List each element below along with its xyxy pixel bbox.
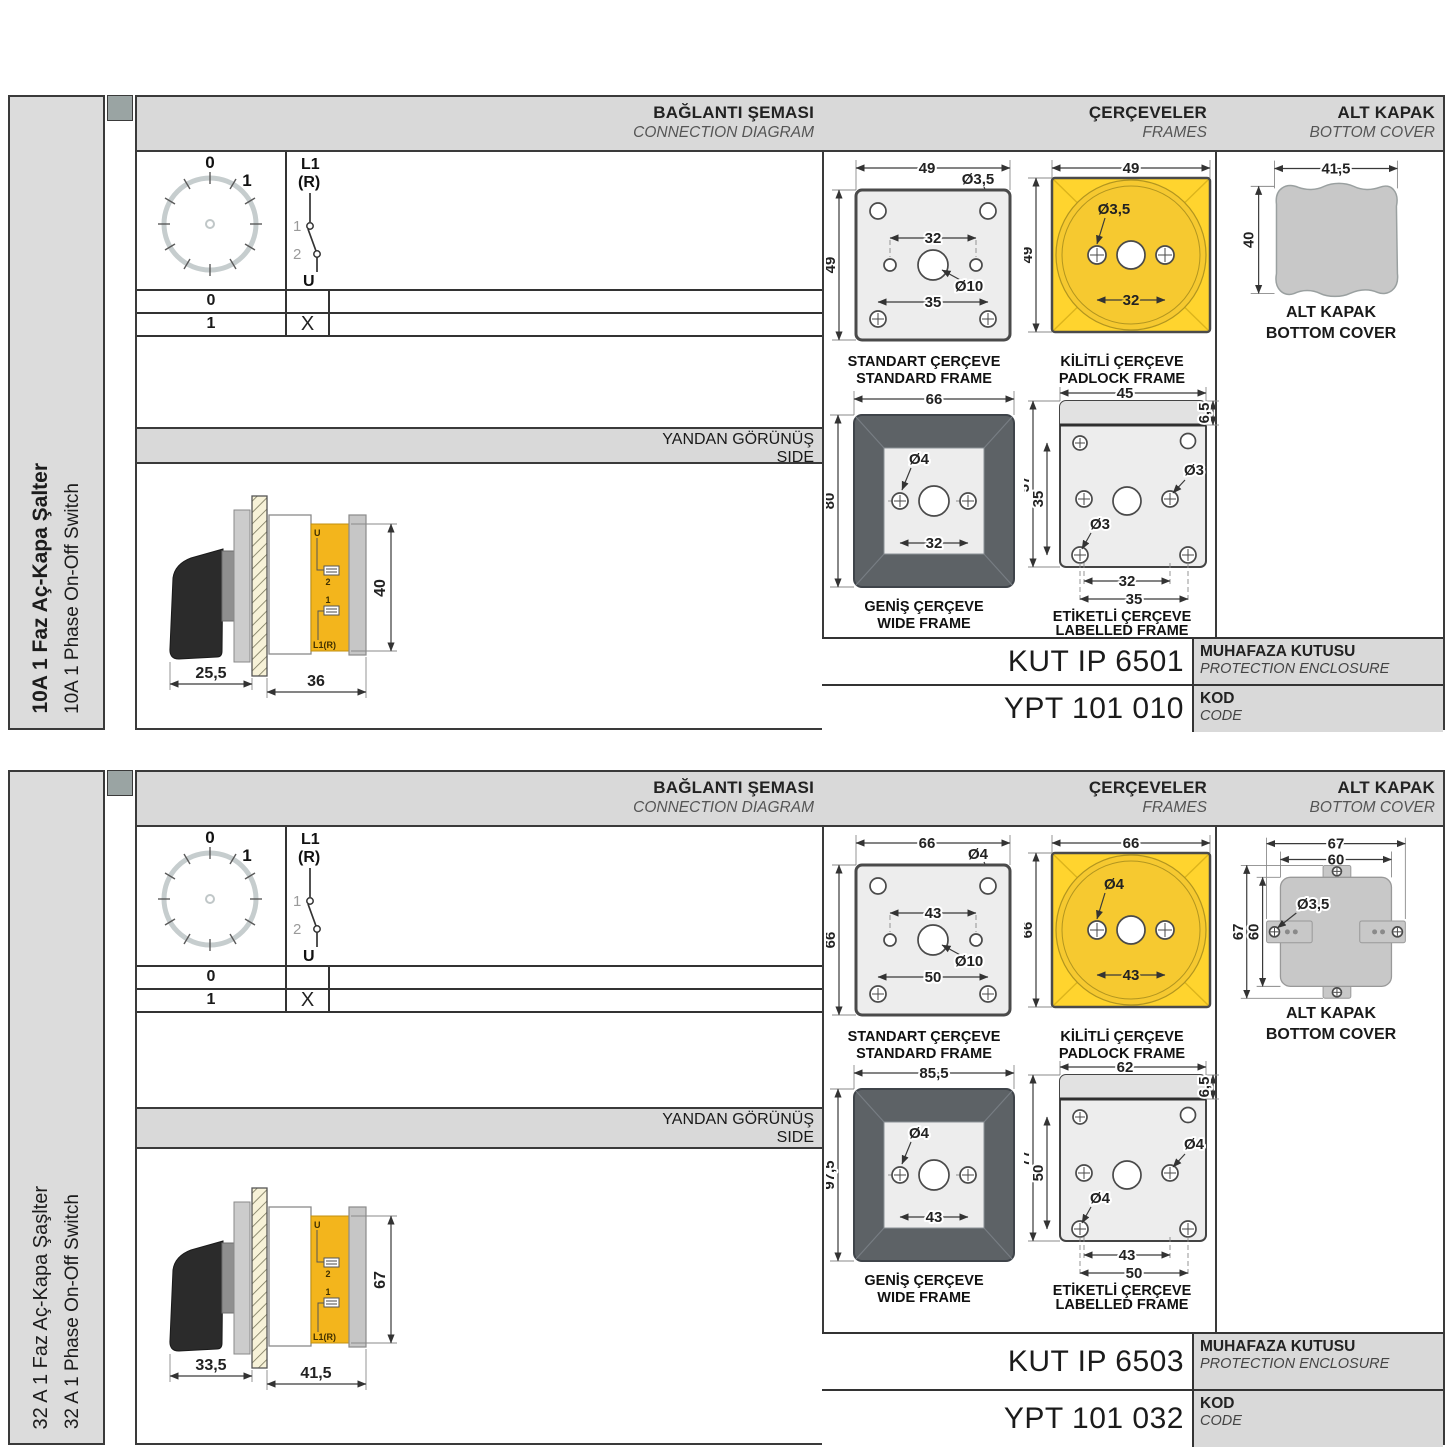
- wide-frame-drawing: 85,5 Ø4 43 97,5 GENİŞ ÇERÇEVE WIDE FRAME: [826, 1059, 1022, 1311]
- cover-header: ALT KAPAK BOTTOM COVER: [1215, 97, 1443, 152]
- position-row-1: 1 X: [137, 314, 822, 337]
- terminal-2: [324, 566, 339, 575]
- caption-en: LABELLED FRAME: [1056, 1297, 1189, 1311]
- contact-1-label: 1: [293, 218, 301, 235]
- code-row: YPT 101 032 KOD CODE: [822, 1389, 1443, 1447]
- padlock-frame-drawing: 66 Ø4 43 66 KİLİTLİ ÇERÇEVE PADLOCK FRAM…: [1024, 829, 1220, 1061]
- dim-knob: 25,5: [195, 665, 226, 682]
- cover-label-tr: ALT KAPAK: [1217, 303, 1445, 324]
- enclosure-label-en: PROTECTION ENCLOSURE: [1200, 1356, 1437, 1372]
- switch-schematic: L1 (R) 1 2 U: [287, 152, 417, 287]
- enclosure-label-tr: MUHAFAZA KUTUSU: [1200, 1338, 1437, 1356]
- dim-inner: 43: [1119, 1247, 1136, 1264]
- position-value: 0: [137, 291, 287, 312]
- handle-knob: [170, 1241, 223, 1351]
- product-code: YPT 101 010: [822, 686, 1192, 732]
- dim-inner: 32: [1119, 573, 1136, 590]
- dim-width-outer: 67: [1328, 837, 1345, 853]
- dim-inner: 32: [1123, 292, 1140, 309]
- dim-height: 57: [1024, 476, 1033, 493]
- bottom-cover-drawing: 41,5 40: [1217, 154, 1445, 304]
- side-view-header: YANDAN GÖRÜNÜŞ SIDE: [137, 1107, 822, 1149]
- contact-2-label: 2: [293, 921, 301, 938]
- dim-width: 66: [926, 391, 943, 408]
- terminal-label-u: U: [314, 528, 321, 538]
- dim-strip: 6,5: [1196, 1077, 1213, 1098]
- cover-header-en: BOTTOM COVER: [1215, 799, 1435, 817]
- frames-header: ÇERÇEVELER FRAMES: [822, 97, 1215, 152]
- dim-inner: 32: [926, 535, 943, 552]
- mounting-panel-hatched: [252, 1188, 267, 1368]
- dim-height: 66: [826, 932, 839, 949]
- caption-tr: GENİŞ ÇERÇEVE: [864, 1272, 984, 1289]
- dim-hole: Ø4: [1104, 876, 1125, 893]
- product-sidebar: 32 A 1 Faz Aç-Kapa Şaşlter 32 A 1 Phase …: [8, 770, 105, 1445]
- knob-step: [222, 551, 234, 621]
- dial-diagram: 0 1: [137, 827, 287, 962]
- dim-inner: 32: [925, 230, 942, 247]
- terminal-label-1: 1: [325, 595, 330, 605]
- connection-header: BAĞLANTI ŞEMASI CONNECTION DIAGRAM: [137, 97, 822, 152]
- dim-width: 49: [919, 160, 936, 177]
- code-label: KOD CODE: [1192, 686, 1443, 732]
- side-header-en: SIDE: [137, 449, 814, 467]
- switch-input-label2: (R): [298, 849, 320, 866]
- enclosure-label: MUHAFAZA KUTUSU PROTECTION ENCLOSURE: [1192, 1334, 1443, 1389]
- dim-inner-height: 35: [1030, 491, 1047, 508]
- connection-header-tr: BAĞLANTI ŞEMASI: [137, 778, 814, 798]
- dial-pos-0: 0: [205, 828, 214, 847]
- code-label-tr: KOD: [1200, 690, 1437, 708]
- product-subtitle: 10A 1 Phase On-Off Switch: [62, 483, 84, 714]
- caption-tr: KİLİTLİ ÇERÇEVE: [1060, 1028, 1184, 1045]
- standard-frame-drawing: 66 Ø4 43 Ø10 50 66 STANDART ÇERÇEVE STAN…: [826, 829, 1022, 1061]
- caption-tr: STANDART ÇERÇEVE: [848, 354, 1001, 370]
- gutter-square: [107, 95, 133, 121]
- dial-pos-0: 0: [205, 153, 214, 172]
- enclosure-label: MUHAFAZA KUTUSU PROTECTION ENCLOSURE: [1192, 639, 1443, 684]
- dim-width: 49: [1123, 160, 1140, 177]
- caption-tr: GENİŞ ÇERÇEVE: [864, 598, 984, 615]
- front-plate: [234, 1202, 250, 1354]
- position-value: 1: [137, 990, 287, 1011]
- code-label: KOD CODE: [1192, 1391, 1443, 1447]
- cover-label-en: BOTTOM COVER: [1217, 1025, 1445, 1046]
- terminal-label-u: U: [314, 1220, 321, 1230]
- dim-lower: 35: [925, 294, 942, 311]
- contact-mark: [287, 291, 330, 312]
- connection-diagram: 0 1 L1 (R) 1 2 U: [137, 827, 822, 967]
- caption-en: WIDE FRAME: [877, 1290, 971, 1306]
- caption-en: STANDARD FRAME: [856, 371, 992, 386]
- dim-strip: 6,5: [1196, 403, 1213, 424]
- product-section-32a: 32 A 1 Faz Aç-Kapa Şaşlter 32 A 1 Phase …: [8, 770, 1445, 1445]
- dim-inner-height: 50: [1030, 1165, 1047, 1182]
- cover-header-tr: ALT KAPAK: [1215, 778, 1435, 798]
- labelled-frame-drawing: 62 6,5 Ø4 Ø4 77 50 43: [1024, 1059, 1220, 1311]
- enclosure-code: KUT IP 6501: [822, 639, 1192, 684]
- labelled-frame-drawing: 45 6,5 Ø3 Ø3 57 35 32: [1024, 385, 1220, 637]
- dim-center-hole: Ø10: [955, 953, 983, 970]
- cover-header-en: BOTTOM COVER: [1215, 124, 1435, 142]
- cover-label: ALT KAPAK BOTTOM COVER: [1217, 1004, 1445, 1046]
- position-value: 1: [137, 314, 287, 335]
- dim-corner-hole: Ø4: [968, 846, 989, 863]
- product-sidebar: 10A 1 Faz Aç-Kapa Şalter 10A 1 Phase On-…: [8, 95, 105, 730]
- dial-cell: 0 1: [137, 152, 287, 289]
- standard-frame-drawing: 49 Ø3,5 32 Ø10 35 49 STANDART ÇERÇEVE ST…: [826, 154, 1022, 386]
- connection-header-en: CONNECTION DIAGRAM: [137, 799, 814, 817]
- contact-mark: [287, 967, 330, 988]
- cover-label: ALT KAPAK BOTTOM COVER: [1217, 303, 1445, 345]
- frames-header-en: FRAMES: [822, 799, 1207, 817]
- position-value: 0: [137, 967, 287, 988]
- terminal-label-2: 2: [325, 1269, 330, 1279]
- contact-mark: X: [287, 990, 330, 1011]
- enclosure-label-tr: MUHAFAZA KUTUSU: [1200, 643, 1437, 661]
- bottom-cover-drawing: 67 60 67 60 Ø3,5: [1217, 829, 1445, 1001]
- wide-frame-drawing: 66 Ø4 32 80 GENİŞ ÇERÇEVE WIDE FRAME: [826, 385, 1022, 637]
- product-title: 32 A 1 Faz Aç-Kapa Şaşlter: [30, 1186, 53, 1429]
- dim-height-inner: 60: [1247, 924, 1263, 941]
- dim-inner: 43: [926, 1209, 943, 1226]
- switch-input-label: L1: [301, 831, 320, 848]
- dim-width: 85,5: [919, 1065, 948, 1082]
- dim-height: 40: [372, 579, 389, 597]
- dim-width: 66: [1123, 835, 1140, 852]
- dim-hole-right: Ø4: [1184, 1136, 1205, 1153]
- frames-header-tr: ÇERÇEVELER: [822, 778, 1207, 798]
- dim-width: 62: [1117, 1059, 1134, 1076]
- switch-schematic: L1 (R) 1 2 U: [287, 827, 417, 962]
- code-label-en: CODE: [1200, 1413, 1437, 1429]
- enclosure-code: KUT IP 6503: [822, 1334, 1192, 1389]
- switch-input-label2: (R): [298, 174, 320, 191]
- front-plate: [234, 510, 250, 662]
- position-row-1: 1 X: [137, 990, 822, 1013]
- side-header-tr: YANDAN GÖRÜNÜŞ: [662, 1111, 814, 1128]
- dim-height: 49: [826, 257, 839, 274]
- dial-cell: 0 1: [137, 827, 287, 965]
- terminal-2: [324, 1258, 339, 1267]
- end-cap: [349, 515, 366, 655]
- terminal-label-2: 2: [325, 577, 330, 587]
- connection-header-en: CONNECTION DIAGRAM: [137, 124, 814, 142]
- caption-tr: KİLİTLİ ÇERÇEVE: [1060, 353, 1184, 370]
- product-title: 10A 1 Faz Aç-Kapa Şalter: [29, 463, 53, 714]
- dial-diagram: 0 1: [137, 152, 287, 287]
- cover-header: ALT KAPAK BOTTOM COVER: [1215, 772, 1443, 827]
- connection-header-tr: BAĞLANTI ŞEMASI: [137, 103, 814, 123]
- enclosure-row: KUT IP 6503 MUHAFAZA KUTUSU PROTECTION E…: [822, 1332, 1443, 1389]
- dim-height: 40: [1242, 232, 1258, 249]
- side-header-tr: YANDAN GÖRÜNÜŞ: [662, 431, 814, 448]
- dim-outer: 35: [1126, 591, 1143, 608]
- dim-height: 97,5: [826, 1160, 838, 1189]
- enclosure-label-en: PROTECTION ENCLOSURE: [1200, 661, 1437, 677]
- dim-hole: Ø4: [909, 1125, 930, 1142]
- dim-corner-hole: Ø3,5: [962, 171, 995, 188]
- column-divider: [822, 97, 824, 728]
- product-subtitle: 32 A 1 Phase On-Off Switch: [62, 1194, 84, 1429]
- dim-height: 67: [372, 1271, 389, 1289]
- mounting-panel-hatched: [252, 496, 267, 676]
- knob-step: [222, 1243, 234, 1313]
- frames-header-en: FRAMES: [822, 124, 1207, 142]
- dim-height-outer: 67: [1231, 924, 1247, 941]
- dim-hole: Ø4: [909, 451, 930, 468]
- code-label-tr: KOD: [1200, 1395, 1437, 1413]
- dim-knob: 33,5: [195, 1357, 226, 1374]
- end-cap: [349, 1207, 366, 1347]
- handle-knob: [170, 549, 223, 659]
- dim-body: 36: [307, 673, 325, 690]
- switch-output-label: U: [303, 948, 315, 962]
- dim-outer: 50: [1126, 1265, 1143, 1282]
- dim-inner: 43: [1123, 967, 1140, 984]
- dim-hole: Ø3,5: [1297, 897, 1329, 913]
- gutter-strip: [105, 95, 135, 730]
- product-code: YPT 101 032: [822, 1391, 1192, 1447]
- cover-header-tr: ALT KAPAK: [1215, 103, 1435, 123]
- dim-width: 41,5: [1321, 161, 1350, 177]
- dim-height: 49: [1024, 247, 1036, 264]
- dim-hole-left: Ø3: [1090, 516, 1110, 533]
- dim-hole-left: Ø4: [1090, 1190, 1111, 1207]
- contact-2-label: 2: [293, 246, 301, 263]
- gutter-square: [107, 770, 133, 796]
- terminal-1: [324, 606, 339, 615]
- terminal-label-l1r: L1(R): [313, 1332, 336, 1342]
- gutter-strip: [105, 770, 135, 1445]
- dim-hole: Ø3,5: [1098, 201, 1131, 218]
- side-header-en: SIDE: [137, 1129, 814, 1147]
- switch-body: [269, 515, 311, 654]
- dim-center-hole: Ø10: [955, 278, 983, 295]
- terminal-label-1: 1: [325, 1287, 330, 1297]
- code-label-en: CODE: [1200, 708, 1437, 724]
- dial-pos-1: 1: [242, 846, 251, 865]
- padlock-frame-drawing: 49 Ø3,5 32 49 KİLİTLİ ÇERÇEVE PADLOCK FR…: [1024, 154, 1220, 386]
- dim-width: 66: [919, 835, 936, 852]
- caption-en: WIDE FRAME: [877, 616, 971, 632]
- dim-hole-right: Ø3: [1184, 462, 1204, 479]
- connection-header: BAĞLANTI ŞEMASI CONNECTION DIAGRAM: [137, 772, 822, 827]
- caption-en: LABELLED FRAME: [1056, 623, 1189, 637]
- caption-en: PADLOCK FRAME: [1059, 371, 1186, 386]
- cover-label-en: BOTTOM COVER: [1217, 324, 1445, 345]
- dim-height: 66: [1024, 922, 1036, 939]
- cover-label-tr: ALT KAPAK: [1217, 1004, 1445, 1025]
- enclosure-row: KUT IP 6501 MUHAFAZA KUTUSU PROTECTION E…: [822, 637, 1443, 684]
- terminal-1: [324, 1298, 339, 1307]
- side-view-drawing: U 2 1 L1(R) 67 33,5 41,5: [145, 1164, 575, 1404]
- dim-lower: 50: [925, 969, 942, 986]
- frames-header: ÇERÇEVELER FRAMES: [822, 772, 1215, 827]
- position-row-0: 0: [137, 967, 822, 990]
- dim-inner: 43: [925, 905, 942, 922]
- switch-body: [269, 1207, 311, 1346]
- dial-pos-1: 1: [242, 171, 251, 190]
- terminal-label-l1r: L1(R): [313, 640, 336, 650]
- caption-tr: STANDART ÇERÇEVE: [848, 1029, 1001, 1045]
- switch-cell: L1 (R) 1 2 U: [287, 827, 417, 967]
- contact-1-label: 1: [293, 893, 301, 910]
- switch-output-label: U: [303, 273, 315, 287]
- product-section-10a: 10A 1 Faz Aç-Kapa Şalter 10A 1 Phase On-…: [8, 95, 1445, 730]
- cover-shape: [1276, 183, 1398, 296]
- contact-mark: X: [287, 314, 330, 335]
- main-panel: BAĞLANTI ŞEMASI CONNECTION DIAGRAM ÇERÇE…: [135, 95, 1445, 730]
- side-view-header: YANDAN GÖRÜNÜŞ SIDE: [137, 427, 822, 464]
- dim-height: 77: [1024, 1150, 1033, 1167]
- dim-body: 41,5: [300, 1365, 331, 1382]
- switch-cell: L1 (R) 1 2 U: [287, 152, 417, 292]
- position-row-0: 0: [137, 291, 822, 314]
- connection-diagram: 0 1 L1 (R) 1 2 U: [137, 152, 822, 291]
- code-row: YPT 101 010 KOD CODE: [822, 684, 1443, 732]
- switch-input-label: L1: [301, 156, 320, 173]
- dim-width: 45: [1117, 385, 1134, 402]
- dim-height: 80: [826, 493, 838, 510]
- side-view-drawing: U 2 1 L1(R) 40 25,5 36: [145, 472, 575, 712]
- main-panel: BAĞLANTI ŞEMASI CONNECTION DIAGRAM ÇERÇE…: [135, 770, 1445, 1445]
- frames-header-tr: ÇERÇEVELER: [822, 103, 1207, 123]
